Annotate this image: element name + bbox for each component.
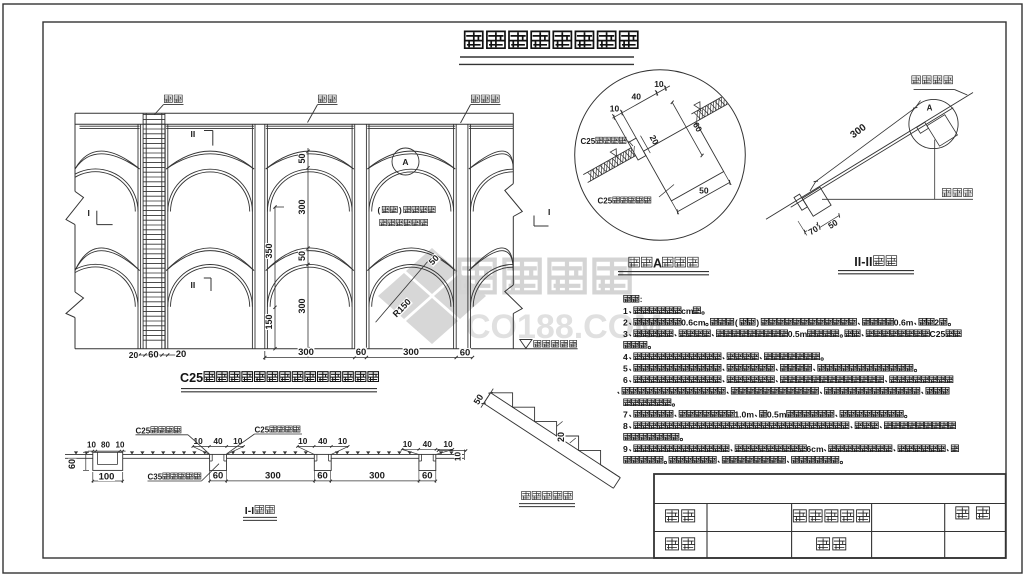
svg-text:20: 20 <box>176 349 187 360</box>
svg-text:10: 10 <box>453 452 463 462</box>
svg-text:2: 2 <box>934 318 939 328</box>
svg-text:II: II <box>191 280 196 290</box>
svg-text:10: 10 <box>443 439 453 449</box>
svg-text:0.6cm: 0.6cm <box>681 318 706 328</box>
svg-text:C25: C25 <box>598 197 613 206</box>
svg-text:C35: C35 <box>148 473 163 482</box>
svg-text:0.5m: 0.5m <box>767 410 787 420</box>
svg-text:C25: C25 <box>581 137 596 146</box>
svg-text:40: 40 <box>318 436 328 446</box>
svg-text:60: 60 <box>213 471 224 482</box>
svg-text:10: 10 <box>116 441 125 450</box>
svg-text:7: 7 <box>623 410 628 420</box>
svg-text:6cm: 6cm <box>806 444 824 454</box>
svg-text:I-I: I-I <box>245 505 254 517</box>
svg-text:): ) <box>756 318 759 328</box>
svg-text:C25: C25 <box>930 329 946 339</box>
svg-text:300: 300 <box>298 347 314 358</box>
svg-text:60: 60 <box>148 350 159 361</box>
svg-text:300: 300 <box>369 471 385 482</box>
svg-text:I: I <box>548 207 550 217</box>
svg-text:300: 300 <box>297 298 307 313</box>
svg-text:A: A <box>402 157 408 167</box>
svg-text:50: 50 <box>297 153 307 163</box>
svg-text:5: 5 <box>623 364 628 374</box>
svg-text:10: 10 <box>338 436 348 446</box>
svg-text:A: A <box>653 257 662 271</box>
svg-text:cm: cm <box>681 306 694 316</box>
svg-text:1: 1 <box>623 306 628 316</box>
svg-text:I: I <box>88 208 90 218</box>
svg-text:2: 2 <box>623 318 628 328</box>
svg-text:20: 20 <box>556 432 566 442</box>
svg-text:100: 100 <box>99 472 115 483</box>
svg-text:II: II <box>191 129 196 139</box>
svg-text:50: 50 <box>699 185 709 195</box>
svg-text:0.5m: 0.5m <box>788 329 808 339</box>
svg-text:150: 150 <box>264 314 274 329</box>
svg-text:C25: C25 <box>136 426 151 435</box>
svg-text:10: 10 <box>654 79 664 89</box>
svg-text:40: 40 <box>423 439 433 449</box>
svg-text:1.0m: 1.0m <box>734 410 754 420</box>
svg-text:60: 60 <box>460 348 471 359</box>
svg-text:4: 4 <box>623 352 628 362</box>
svg-text:300: 300 <box>265 471 281 482</box>
svg-text:): ) <box>399 206 402 215</box>
svg-text:300: 300 <box>297 199 307 214</box>
svg-text:20: 20 <box>129 350 139 360</box>
svg-text:300: 300 <box>403 347 419 358</box>
svg-text:80: 80 <box>101 441 110 450</box>
svg-text:60: 60 <box>422 471 433 482</box>
svg-text:50: 50 <box>297 251 307 261</box>
svg-text:10: 10 <box>403 439 413 449</box>
svg-text:C25: C25 <box>255 426 270 435</box>
svg-text:10: 10 <box>87 441 96 450</box>
svg-text:60: 60 <box>356 347 367 358</box>
svg-text:40: 40 <box>213 436 223 446</box>
svg-text:A: A <box>927 104 933 113</box>
svg-text:10: 10 <box>233 436 243 446</box>
svg-text:C25: C25 <box>180 371 203 385</box>
svg-text:9: 9 <box>623 444 628 454</box>
svg-text:350: 350 <box>264 243 274 258</box>
svg-text:60: 60 <box>67 459 77 469</box>
svg-text:0.6m: 0.6m <box>894 318 914 328</box>
svg-text:60: 60 <box>317 471 328 482</box>
svg-text:8: 8 <box>623 421 628 431</box>
svg-text:(: ( <box>378 206 381 215</box>
svg-text:6: 6 <box>623 375 628 385</box>
svg-text:10: 10 <box>610 104 620 114</box>
svg-text:(: ( <box>735 318 738 328</box>
svg-text:3: 3 <box>623 329 628 339</box>
svg-text:10: 10 <box>298 436 308 446</box>
svg-text:II-II: II-II <box>854 255 872 269</box>
svg-text:40: 40 <box>632 92 642 102</box>
